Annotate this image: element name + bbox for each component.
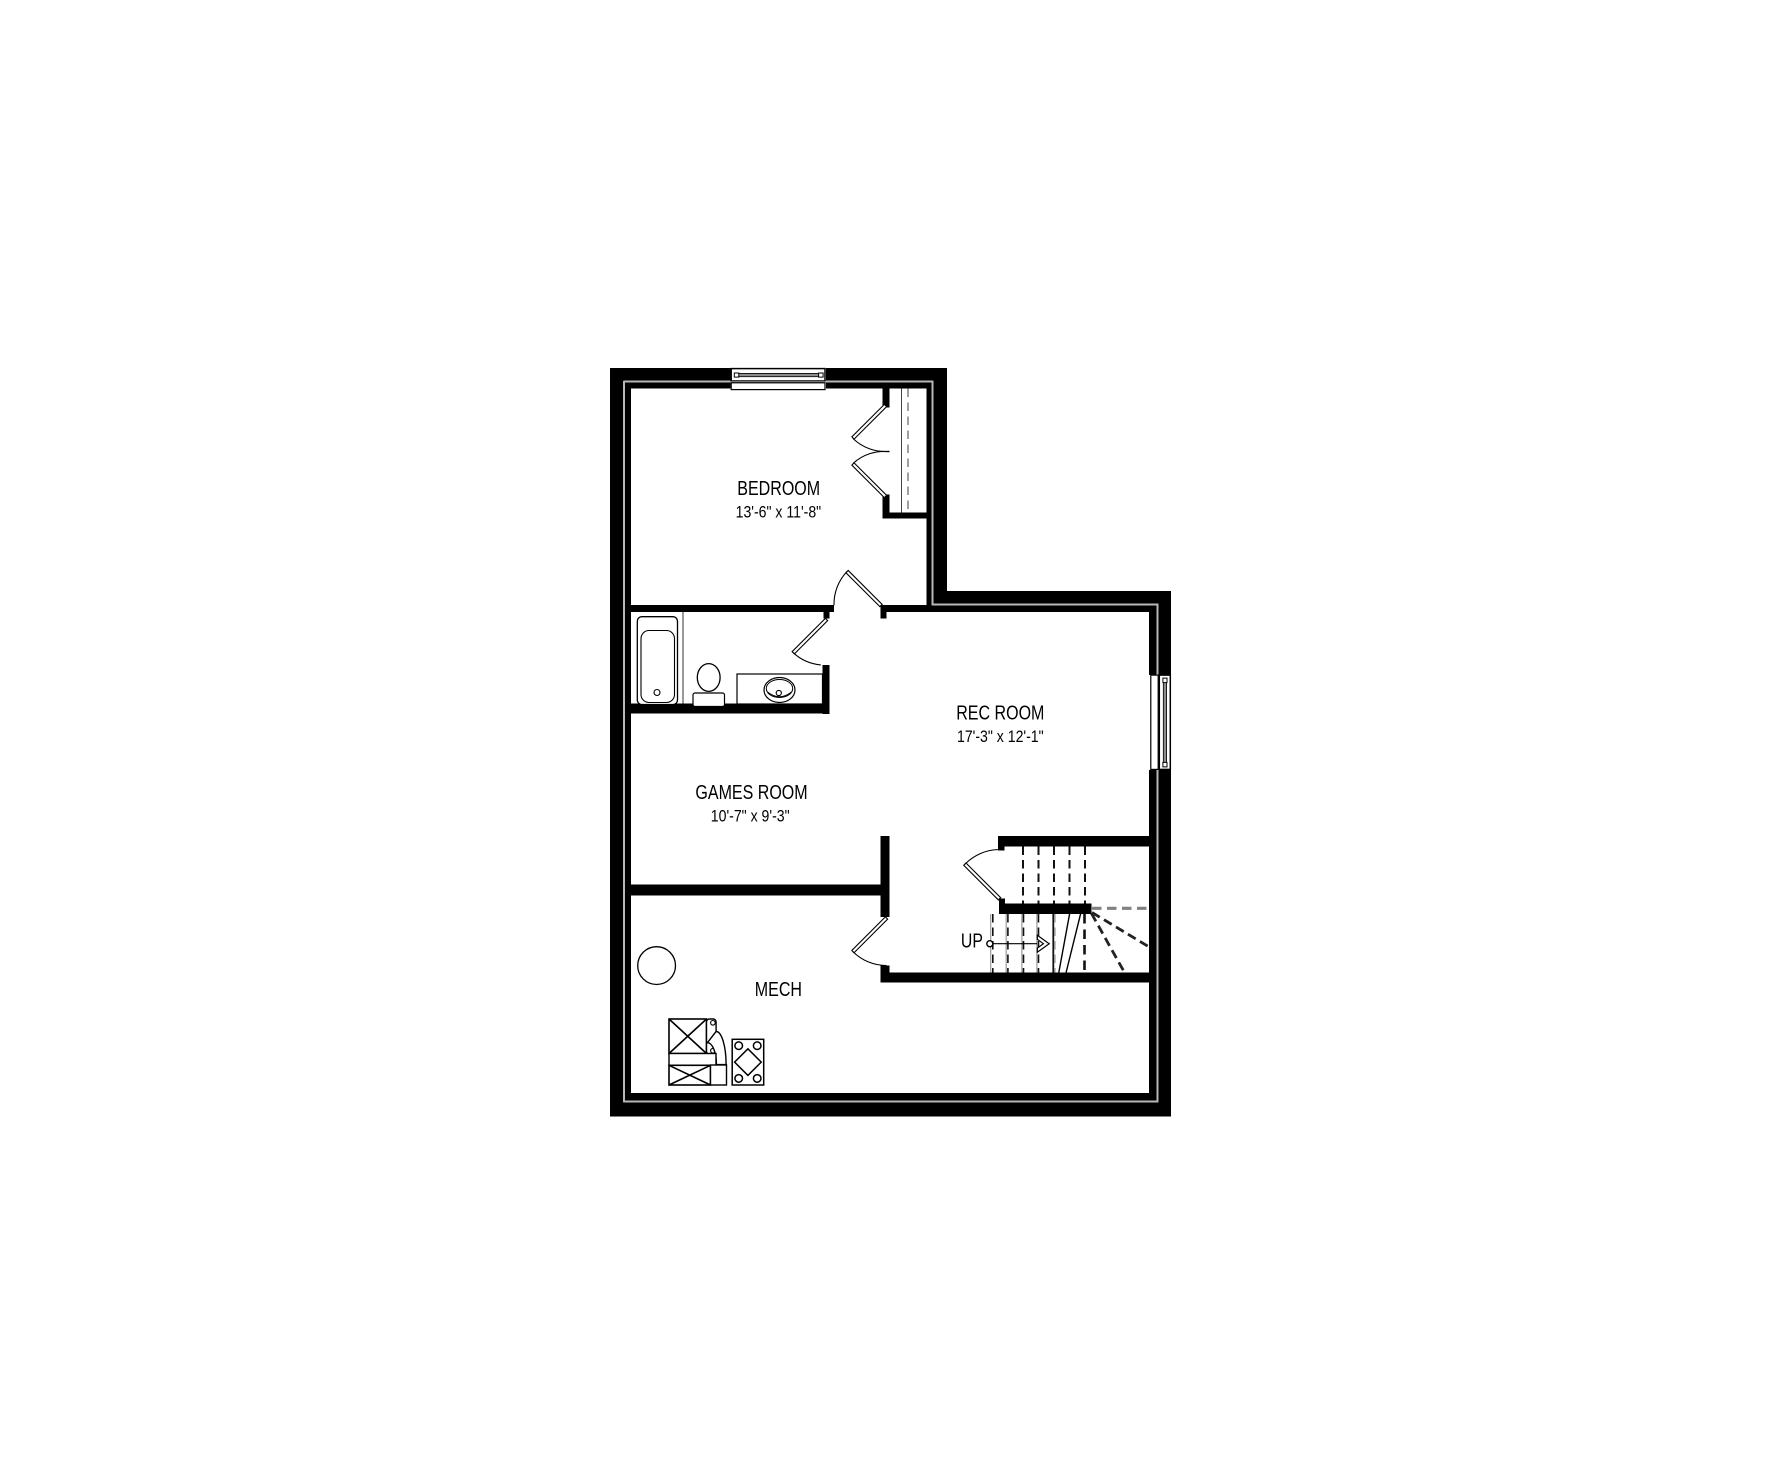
svg-text:13'-6" x 11'-8": 13'-6" x 11'-8" <box>736 504 822 522</box>
svg-text:BEDROOM: BEDROOM <box>737 476 820 499</box>
svg-text:GAMES ROOM: GAMES ROOM <box>695 780 807 803</box>
svg-text:REC ROOM: REC ROOM <box>956 701 1044 724</box>
svg-text:17'-3" x 12'-1": 17'-3" x 12'-1" <box>957 728 1044 746</box>
svg-text:MECH: MECH <box>755 977 802 1000</box>
svg-text:10'-7" x 9'-3": 10'-7" x 9'-3" <box>711 808 790 826</box>
svg-text:UP: UP <box>961 930 983 952</box>
